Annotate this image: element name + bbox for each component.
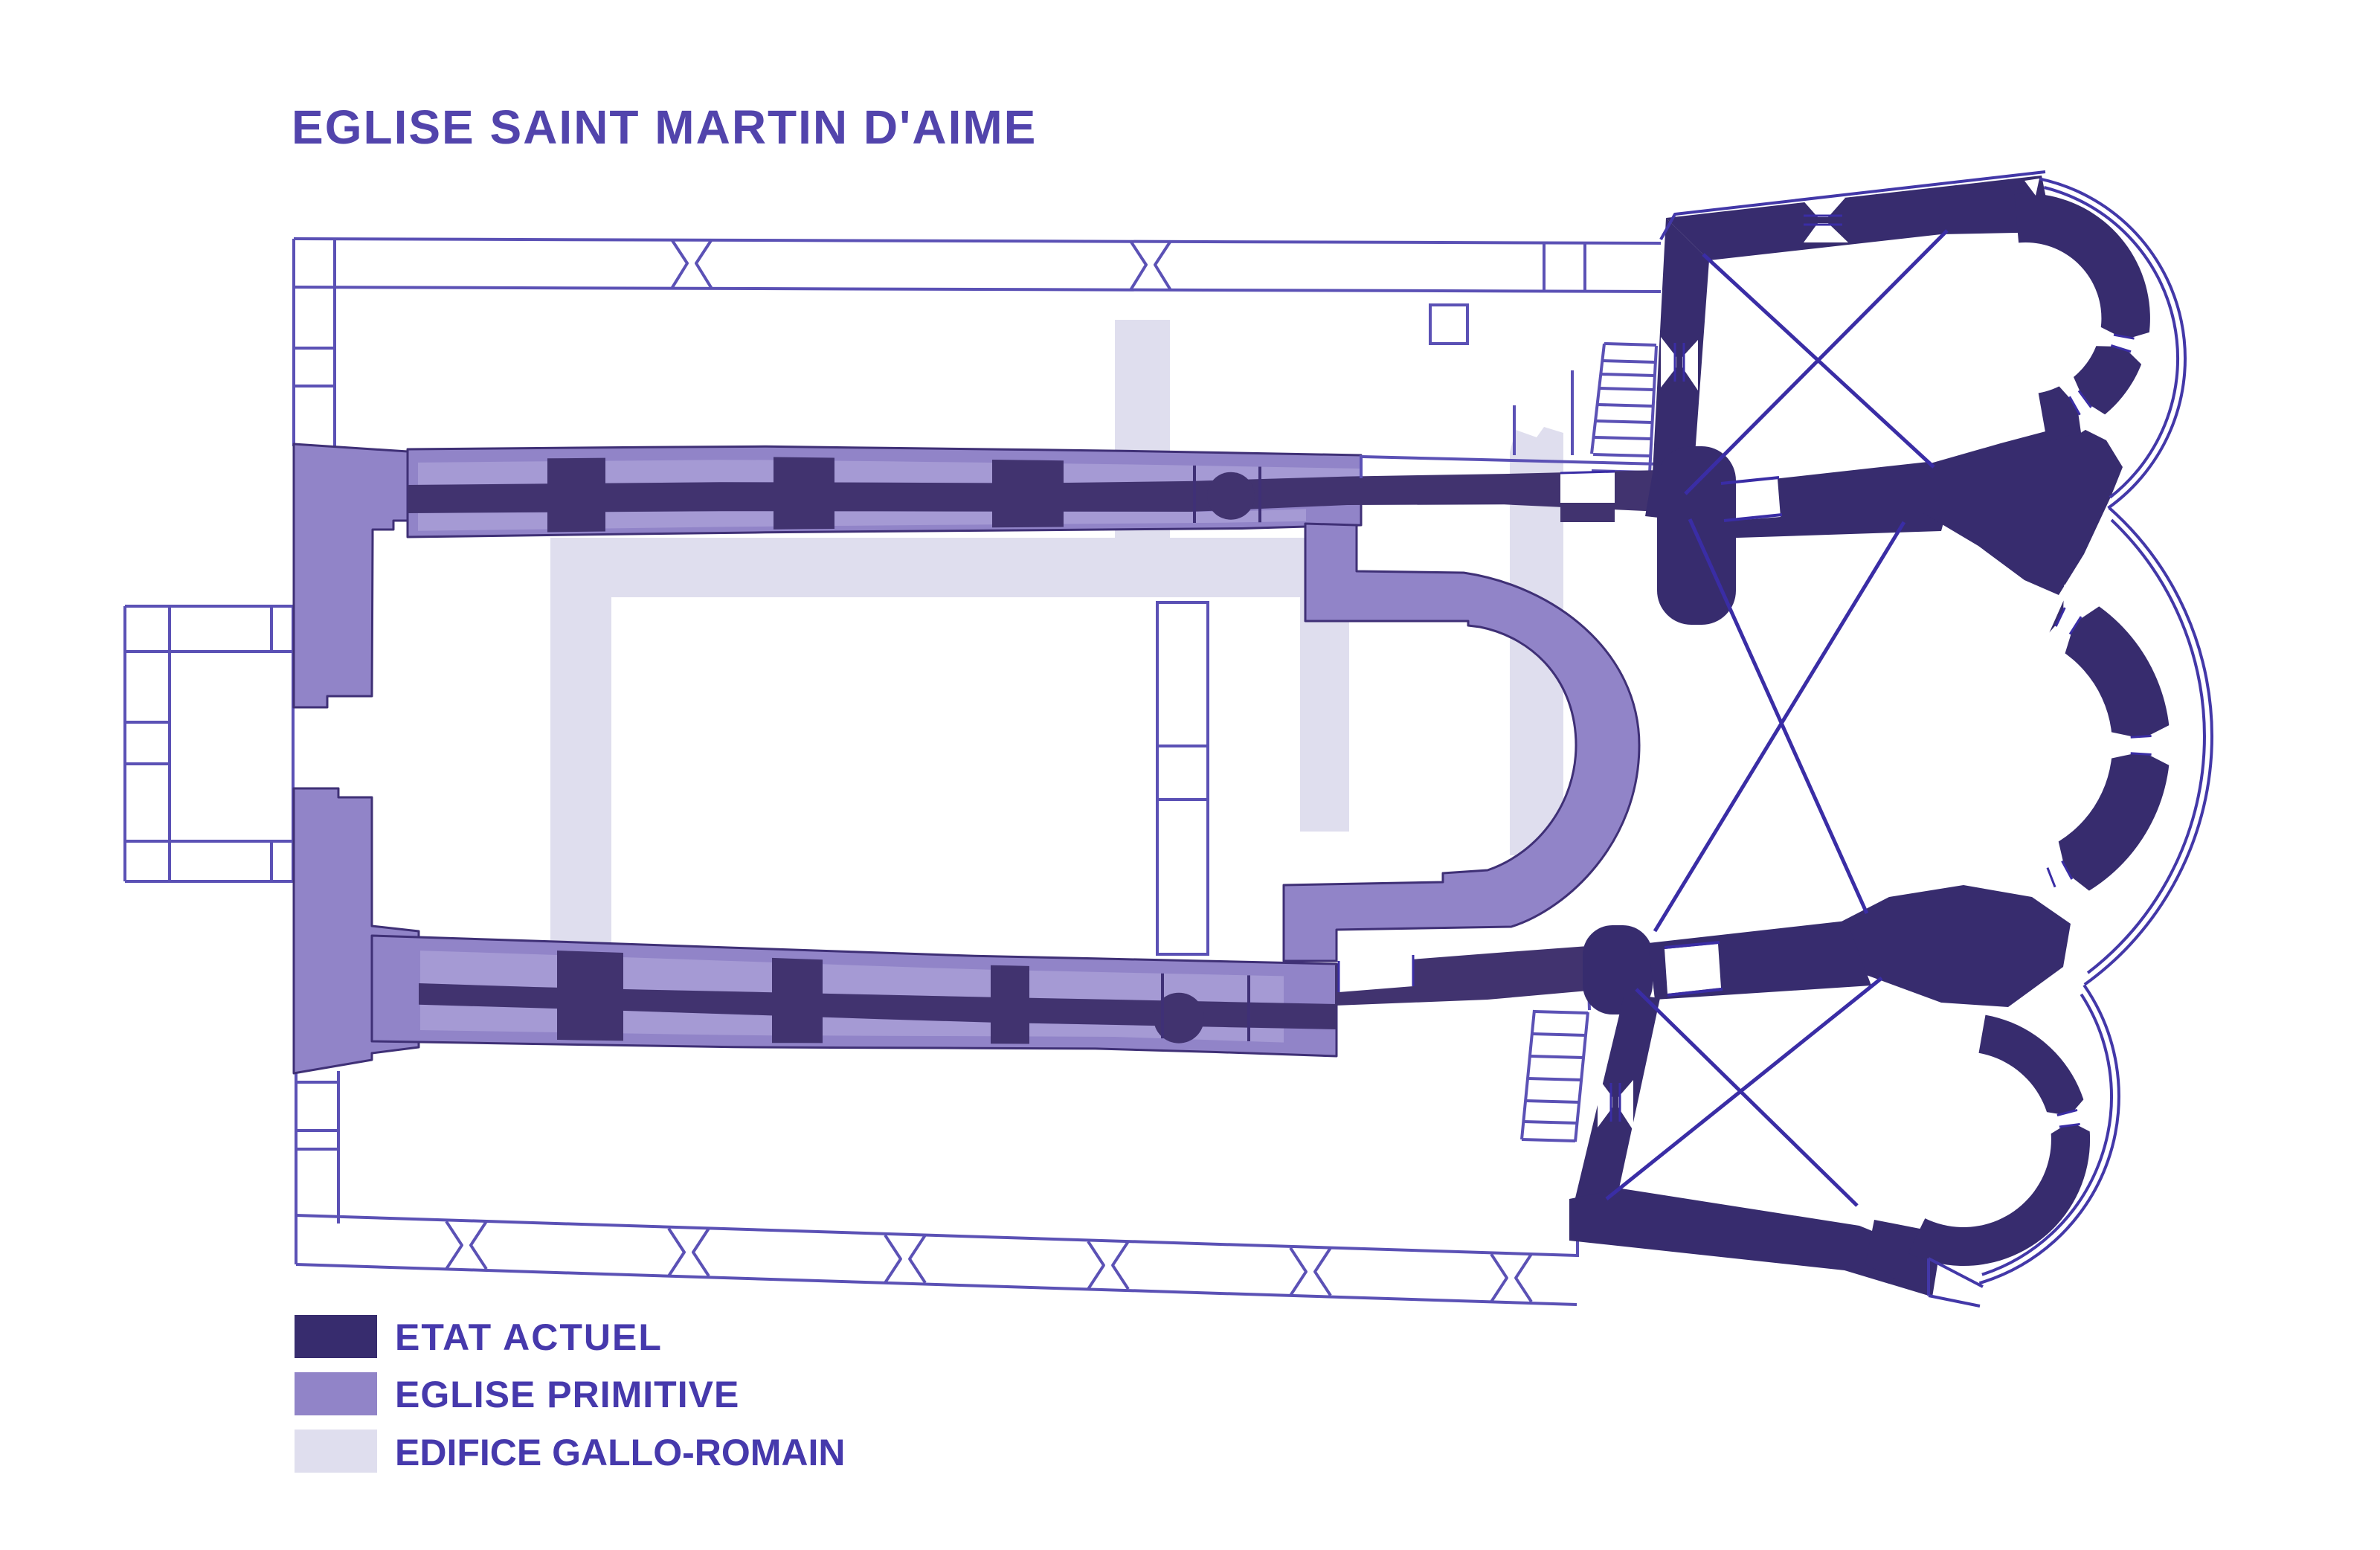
svg-text:ETAT ACTUEL: ETAT ACTUEL <box>395 1316 663 1358</box>
svg-text:EGLISE SAINT MARTIN D'AIME: EGLISE SAINT MARTIN D'AIME <box>292 100 1037 154</box>
svg-text:EDIFICE GALLO-ROMAIN: EDIFICE GALLO-ROMAIN <box>395 1432 846 1473</box>
svg-text:EGLISE PRIMITIVE: EGLISE PRIMITIVE <box>395 1374 739 1415</box>
